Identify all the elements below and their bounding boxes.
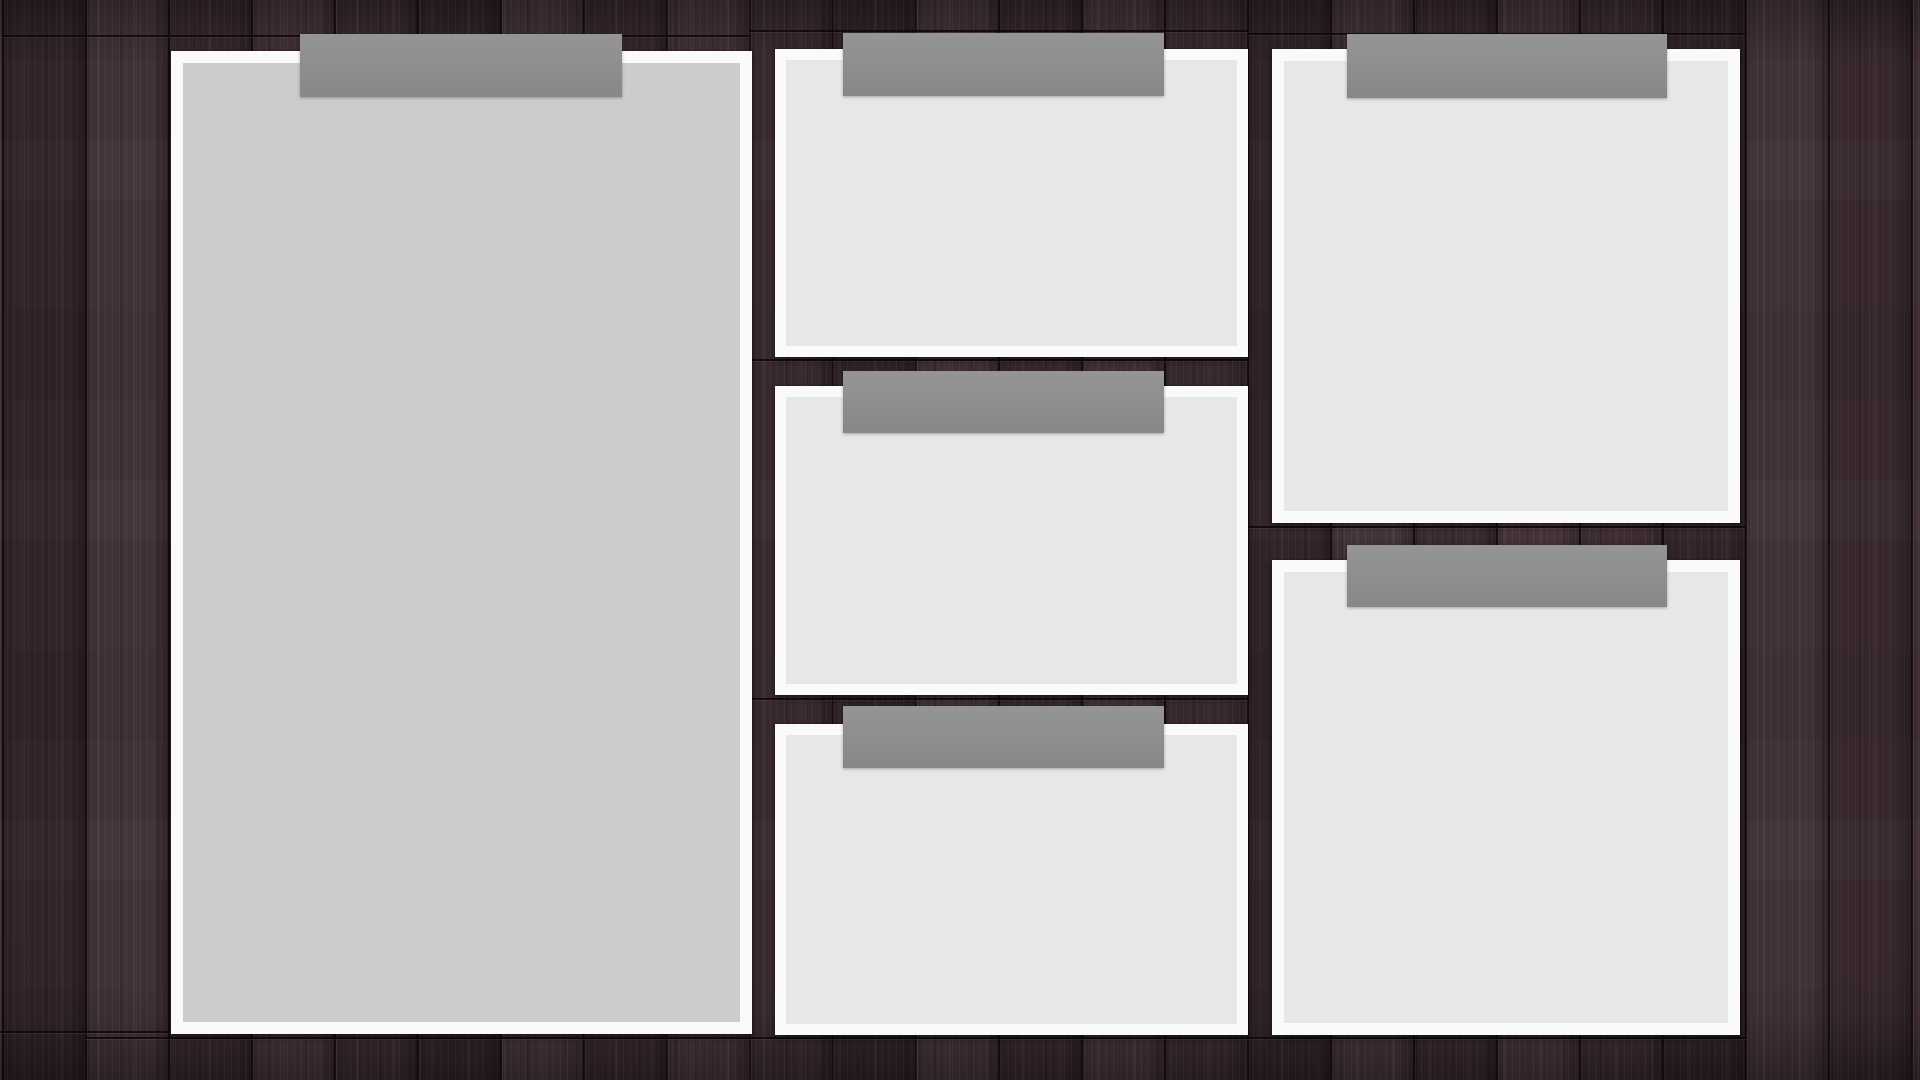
plank-joint-seam [749,359,1248,361]
plank-joint-seam [0,1031,170,1033]
card-right-top [1272,49,1740,523]
card-right-top-blank-area [1284,61,1728,511]
card-middle-center-tape-strip [843,371,1164,433]
card-middle-top-tape-strip [843,33,1164,96]
card-right-top-tape-strip [1347,34,1667,98]
card-right-bottom [1272,560,1740,1035]
taped-cards-scene [0,0,1920,1080]
plank-joint-seam [1248,526,1745,528]
card-middle-center-blank-area [786,397,1237,684]
card-right-bottom-blank-area [1284,572,1728,1023]
card-left-large [171,51,752,1034]
card-middle-bottom [775,724,1248,1035]
card-middle-bottom-blank-area [786,735,1237,1024]
card-left-large-tape-strip [300,34,622,97]
plank-joint-seam [85,1037,1747,1039]
card-right-bottom-tape-strip [1347,545,1667,607]
plank-joint-seam [749,30,1248,32]
card-middle-top-blank-area [786,60,1237,346]
card-middle-bottom-tape-strip [843,706,1164,768]
card-left-large-blank-area [183,63,740,1022]
plank-joint-seam [749,698,1248,700]
